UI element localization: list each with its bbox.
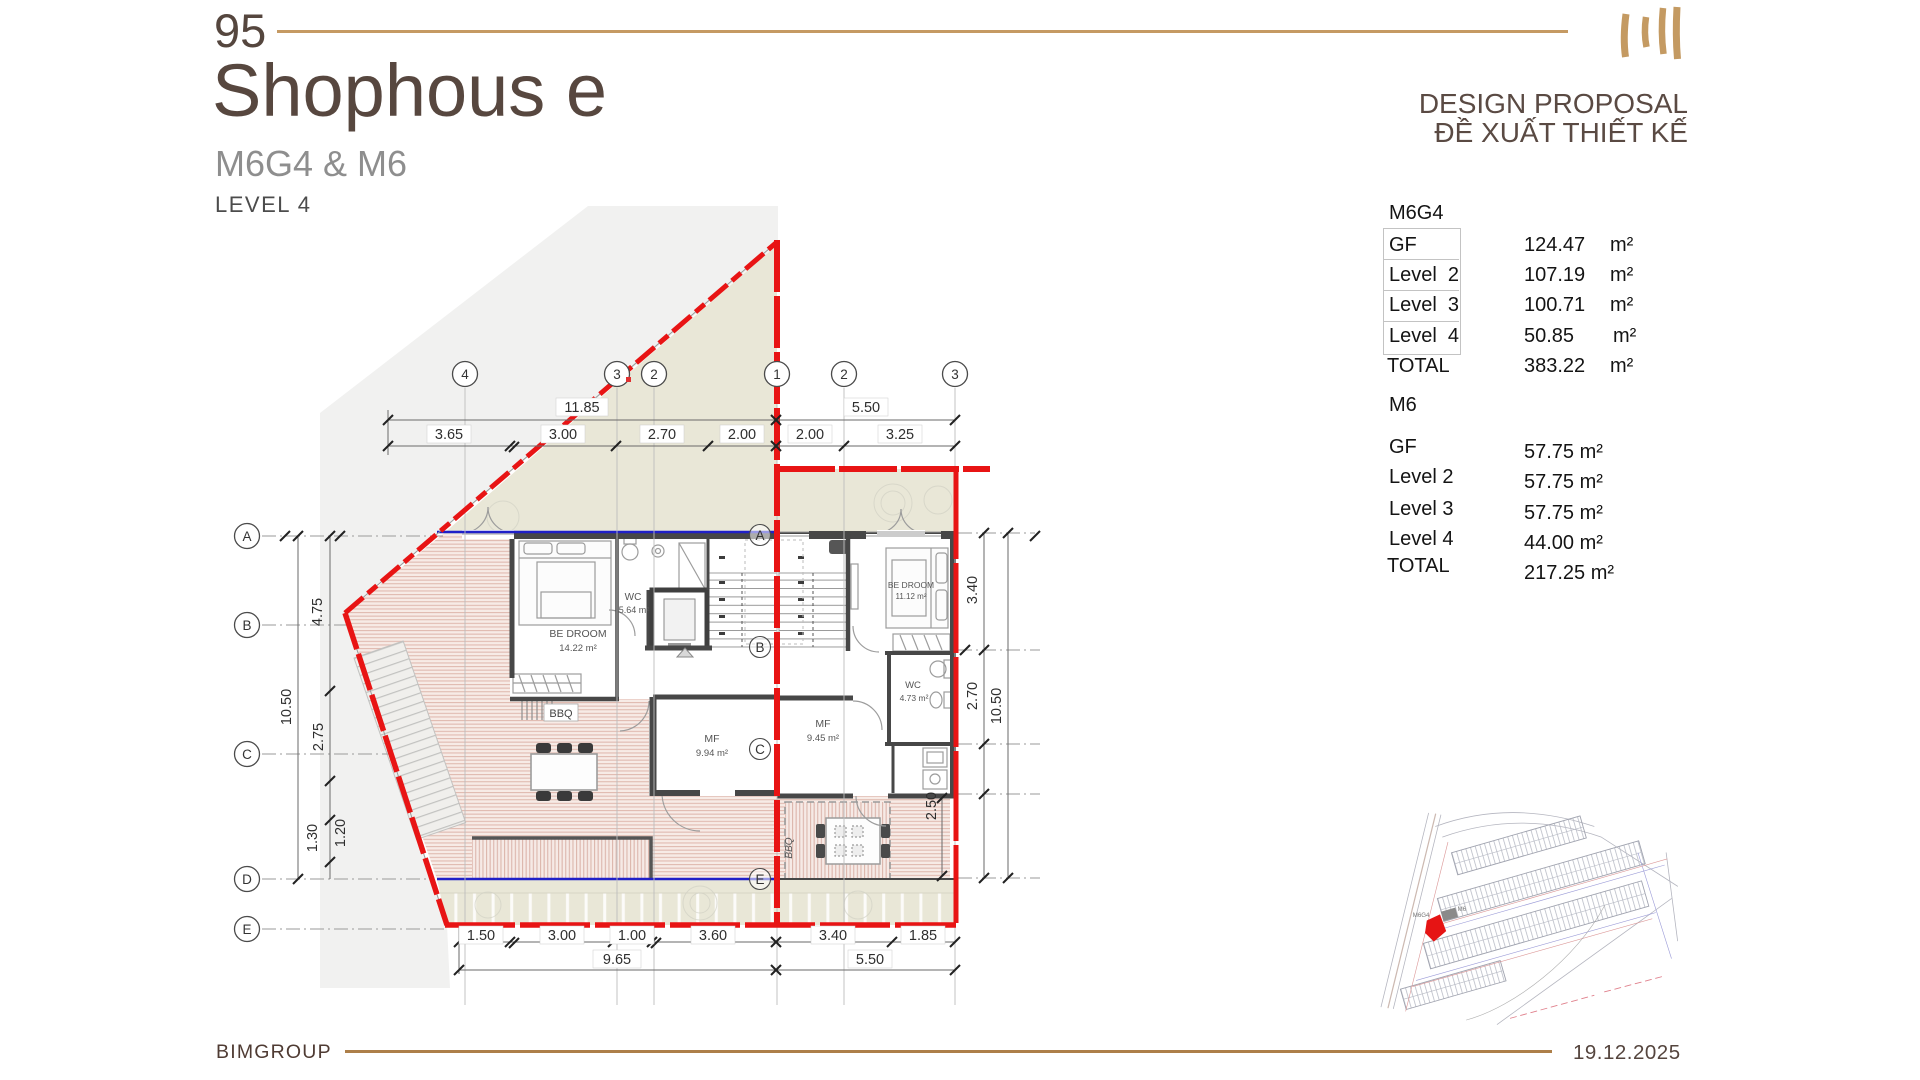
svg-text:3.65: 3.65 (435, 427, 463, 443)
svg-text:M6: M6 (1458, 906, 1467, 913)
svg-text:2.70: 2.70 (648, 427, 676, 443)
svg-text:MF: MF (704, 733, 719, 745)
svg-text:1: 1 (773, 367, 781, 382)
svg-text:E: E (755, 872, 764, 887)
svg-text:A: A (242, 529, 251, 544)
svg-text:BE DROOM: BE DROOM (549, 628, 606, 640)
svg-text:3.40: 3.40 (819, 928, 847, 944)
svg-text:10.50: 10.50 (989, 688, 1005, 724)
svg-text:BBQ: BBQ (784, 837, 795, 858)
svg-text:1.30: 1.30 (305, 824, 321, 852)
svg-text:C: C (242, 747, 252, 762)
svg-text:1.50: 1.50 (467, 928, 495, 944)
svg-text:11.85: 11.85 (564, 400, 599, 416)
svg-text:BE DROOM: BE DROOM (888, 580, 934, 590)
svg-text:B: B (242, 618, 251, 633)
svg-text:9.45 m²: 9.45 m² (807, 733, 839, 744)
svg-text:WC: WC (905, 680, 921, 691)
svg-text:A: A (755, 528, 764, 543)
svg-text:2.70: 2.70 (965, 682, 981, 710)
svg-text:2.75: 2.75 (311, 723, 327, 751)
svg-text:2.00: 2.00 (796, 427, 824, 443)
svg-text:D: D (242, 872, 252, 887)
svg-text:4.73 m²: 4.73 m² (900, 693, 929, 703)
svg-text:3.40: 3.40 (965, 576, 981, 604)
svg-text:B: B (755, 640, 764, 655)
svg-text:E: E (242, 922, 251, 937)
svg-text:3: 3 (951, 367, 959, 382)
svg-text:10.50: 10.50 (279, 689, 295, 725)
svg-text:5.50: 5.50 (852, 400, 880, 416)
svg-text:1.00: 1.00 (618, 928, 646, 944)
svg-text:M6G4: M6G4 (1413, 912, 1430, 919)
svg-text:MF: MF (815, 718, 830, 730)
svg-text:2: 2 (840, 367, 848, 382)
svg-text:2: 2 (650, 367, 658, 382)
svg-text:4.75: 4.75 (310, 598, 326, 626)
svg-text:5.50: 5.50 (856, 952, 884, 968)
svg-text:2.50: 2.50 (924, 792, 940, 820)
svg-text:3.25: 3.25 (886, 427, 914, 443)
svg-text:2.00: 2.00 (728, 427, 756, 443)
svg-text:4: 4 (461, 367, 469, 382)
svg-text:14.22 m²: 14.22 m² (559, 643, 597, 654)
svg-text:3.00: 3.00 (549, 427, 577, 443)
svg-text:3.60: 3.60 (699, 928, 727, 944)
svg-text:11.12 m²: 11.12 m² (896, 592, 927, 601)
svg-text:1.20: 1.20 (333, 819, 349, 847)
svg-text:9.94 m²: 9.94 m² (696, 748, 728, 759)
svg-text:BBQ: BBQ (549, 708, 573, 720)
svg-text:C: C (755, 742, 765, 757)
svg-text:WC: WC (625, 592, 642, 603)
svg-text:9.65: 9.65 (603, 952, 631, 968)
svg-text:3.00: 3.00 (548, 928, 576, 944)
svg-text:1.85: 1.85 (909, 928, 937, 944)
svg-text:5.64 m²: 5.64 m² (619, 605, 650, 615)
svg-text:3: 3 (613, 367, 621, 382)
